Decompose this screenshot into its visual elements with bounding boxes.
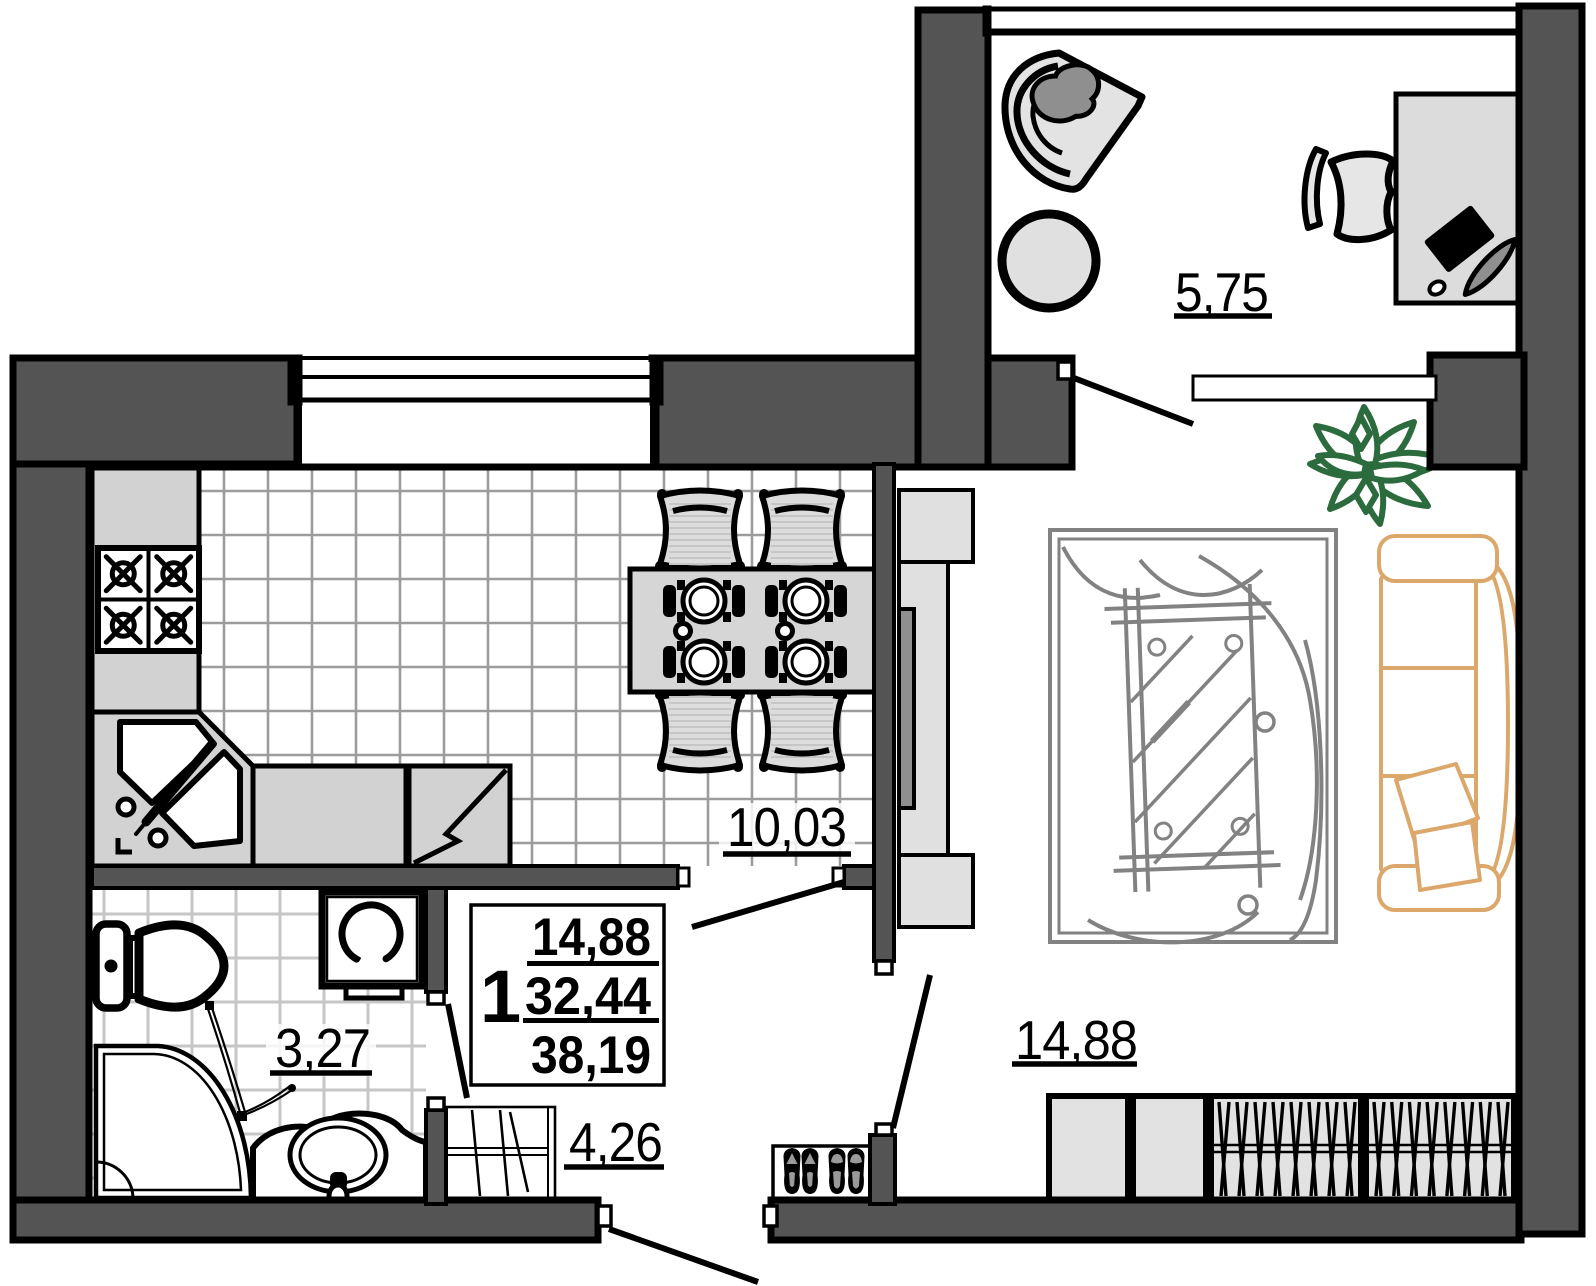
svg-text:14,88: 14,88 — [532, 908, 651, 967]
svg-text:10,03: 10,03 — [727, 796, 846, 858]
svg-text:4,26: 4,26 — [569, 1111, 662, 1173]
svg-text:38,19: 38,19 — [531, 1026, 651, 1085]
svg-text:32,44: 32,44 — [525, 967, 651, 1026]
svg-text:3,27: 3,27 — [275, 1017, 370, 1079]
svg-text:1: 1 — [480, 955, 521, 1038]
